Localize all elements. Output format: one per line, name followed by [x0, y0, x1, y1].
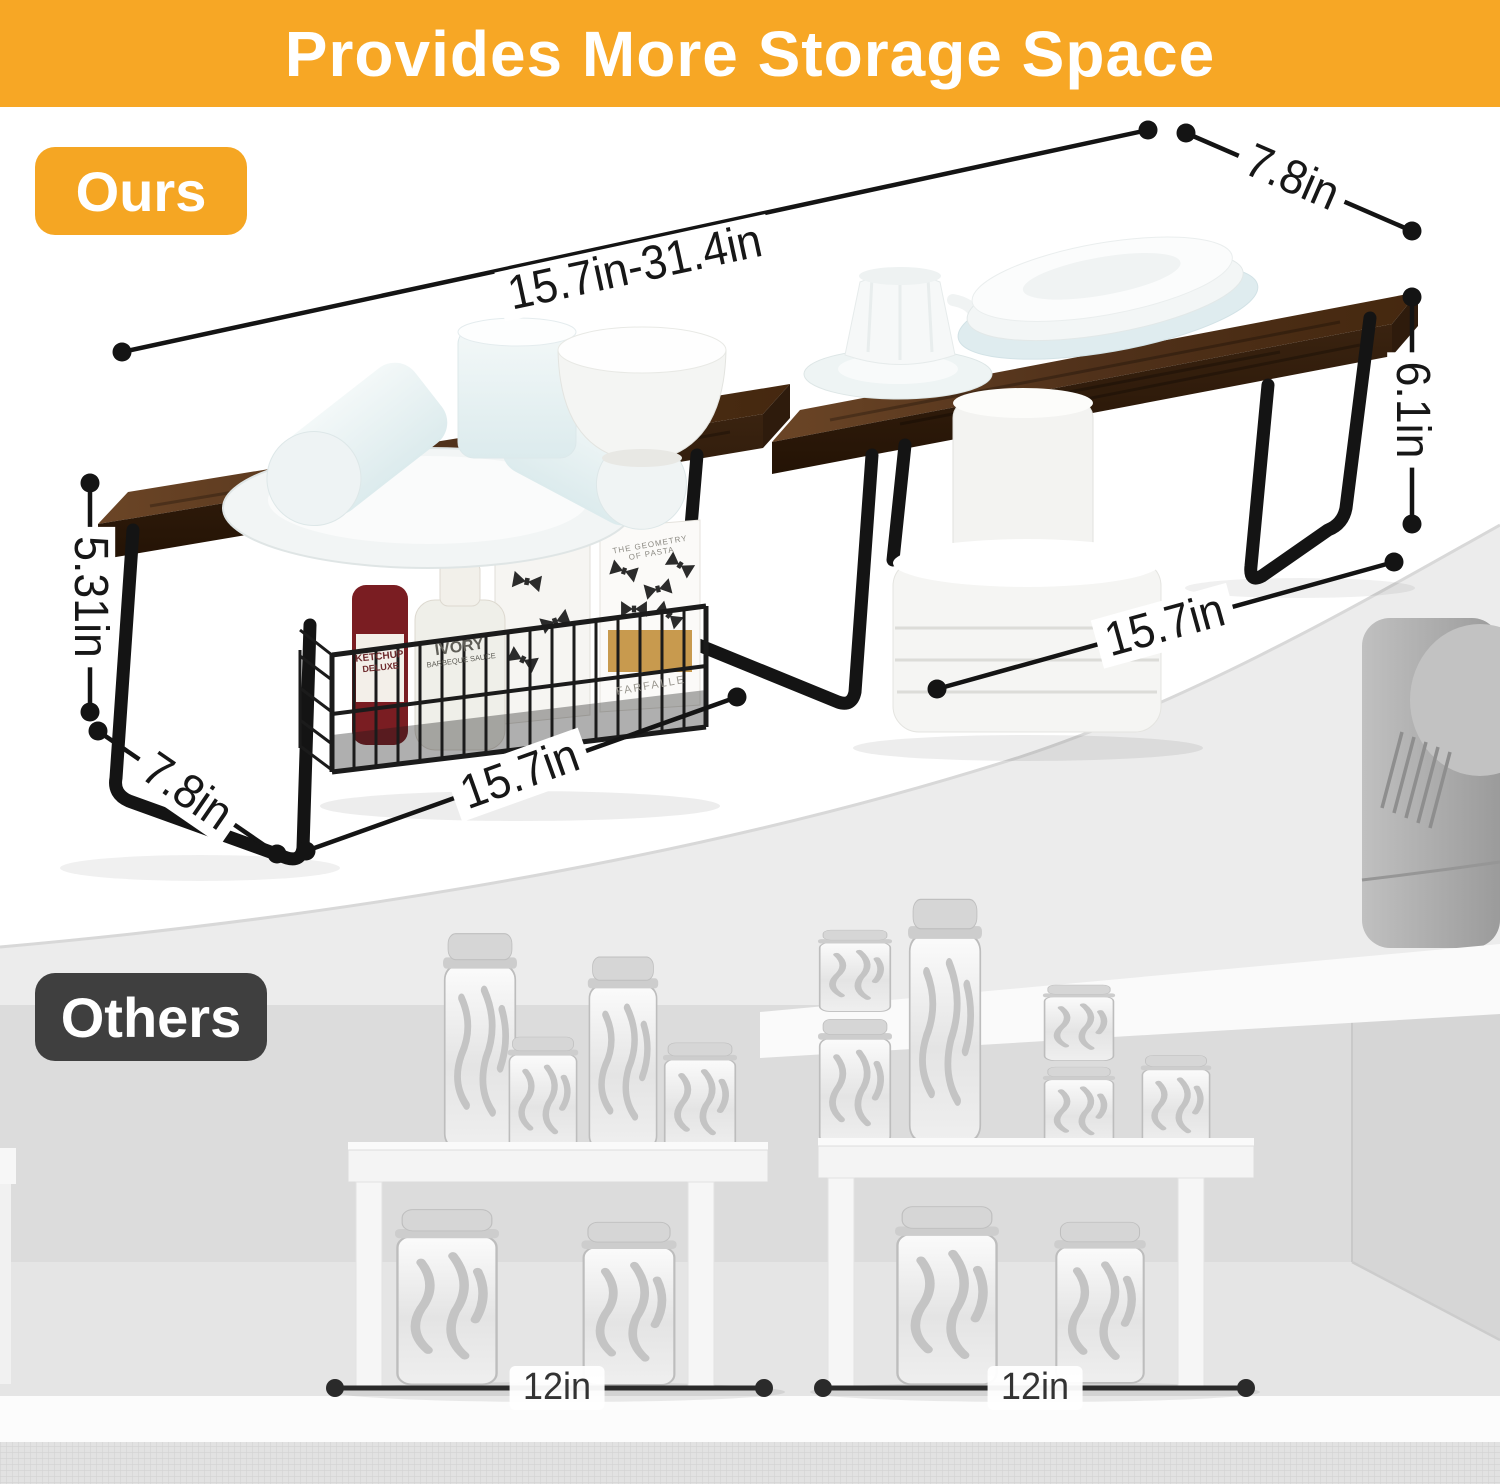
riser-leg [688, 1182, 714, 1390]
metal-leg-center [683, 455, 872, 703]
glass-jar [818, 930, 892, 1011]
textured-strip [0, 1442, 1500, 1484]
glass-jar [588, 957, 658, 1148]
glass-jar [1054, 1222, 1146, 1383]
dimension-left-height: 5.31in [65, 527, 115, 667]
riser-leg [828, 1178, 854, 1388]
glass-jar [818, 1019, 892, 1144]
glass-jar [895, 1207, 999, 1385]
glass-jar [1141, 1055, 1211, 1146]
glass-jar [1043, 1067, 1115, 1146]
shelf-front-edge [0, 1396, 1500, 1444]
glass-jar [1043, 985, 1115, 1061]
banner-title: Provides More Storage Space [0, 0, 1500, 107]
pasta-window [608, 630, 692, 672]
partial-riser-left-edge [0, 1148, 16, 1184]
kitchen-appliance [1362, 618, 1500, 948]
glass-jar [443, 934, 517, 1148]
glass-jar [581, 1222, 676, 1385]
others-badge-label: Others [61, 985, 242, 1050]
others-badge: Others [35, 973, 267, 1061]
ours-badge: Ours [35, 147, 247, 235]
glass-jar [508, 1037, 578, 1150]
dimension-right-height: 6.1in [1387, 352, 1437, 467]
metal-leg-inner-right [893, 445, 905, 560]
product-infographic: Provides More Storage Space Ours Others … [0, 0, 1500, 1484]
riser-board [818, 1146, 1254, 1178]
glass-jar [395, 1210, 499, 1385]
dimension-others-right-width: 12in [988, 1366, 1083, 1410]
riser-leg [1178, 1178, 1204, 1388]
cabinet-floor [0, 1262, 1500, 1398]
banner-title-text: Provides More Storage Space [285, 17, 1215, 91]
dimension-others-left-width: 12in [510, 1366, 605, 1410]
glass-jar [908, 899, 982, 1140]
riser-leg [356, 1182, 382, 1390]
riser-board [348, 1150, 768, 1182]
glass-jar [663, 1043, 737, 1151]
ours-badge-label: Ours [76, 159, 207, 224]
